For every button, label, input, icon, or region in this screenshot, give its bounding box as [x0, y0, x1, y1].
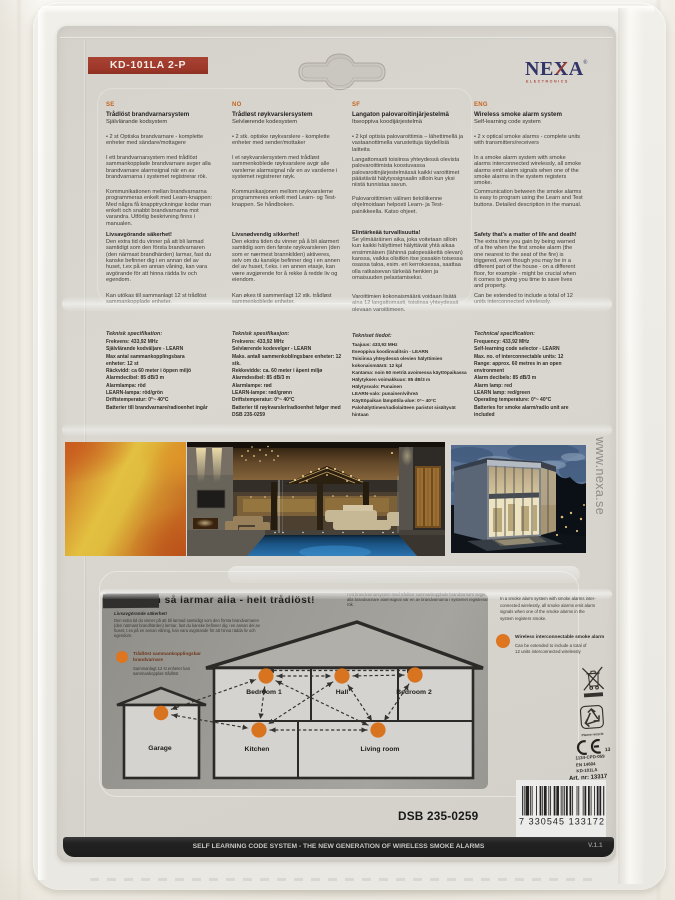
svg-text:Bedroom 1: Bedroom 1: [246, 689, 282, 696]
svg-text:Garage: Garage: [148, 745, 172, 752]
svg-text:NEXA: NEXA: [525, 58, 584, 80]
svg-text:®: ®: [583, 59, 588, 66]
svg-text:Living room: Living room: [361, 746, 400, 753]
svg-text:ELECTRONICS: ELECTRONICS: [526, 80, 569, 84]
svg-text:Kitchen: Kitchen: [245, 746, 270, 753]
svg-text:7 330545 133172: 7 330545 133172: [519, 817, 604, 827]
svg-text:Please recycle: Please recycle: [581, 732, 603, 738]
svg-text:Bedroom 2: Bedroom 2: [396, 689, 432, 696]
svg-text:Hall: Hall: [336, 689, 349, 696]
